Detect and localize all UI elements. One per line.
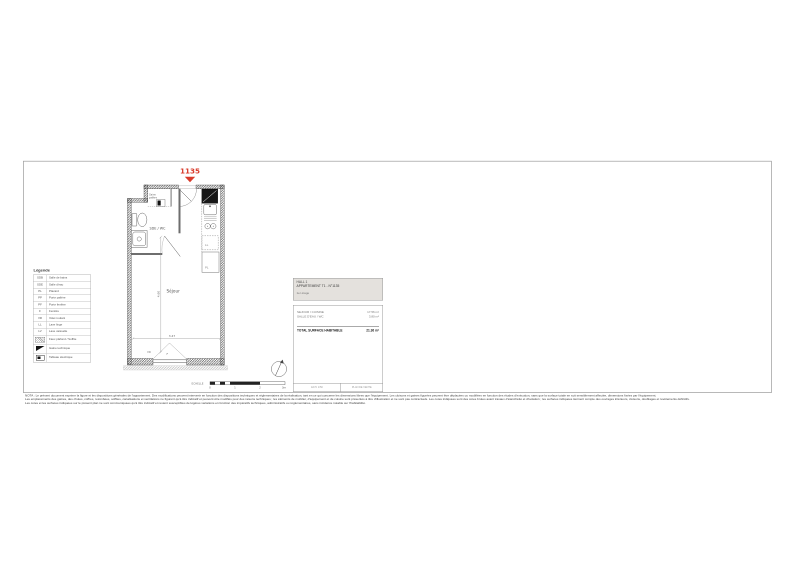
unit-number-label: 1135	[180, 167, 200, 176]
electrical-panel-swatch-icon	[36, 355, 45, 361]
window-label: F	[167, 352, 169, 356]
scale-tick-3: 3m	[282, 385, 287, 389]
dimension-width-label: 3.47	[169, 334, 176, 338]
legend-row: Tableau électrique	[34, 353, 91, 362]
legend-row: LVLave vaisselle	[34, 329, 91, 336]
living-room-label: Séjour	[167, 289, 181, 294]
entry-door	[179, 186, 197, 207]
wc-tank	[132, 214, 137, 227]
closet-label: PL	[205, 266, 209, 270]
scale-tick-0: 0	[209, 385, 211, 389]
scale-tick-2: 2	[259, 385, 261, 389]
scale-bar: ECHELLE 0 1 2 3m	[192, 381, 287, 389]
apartment-info-panel: HALL 1 APPARTEMENT T1 - N°1135 1er étage…	[293, 278, 473, 506]
info-panel-body: SEJOUR / CUISINE 17.56 m² SALLE D'EAU / …	[293, 305, 383, 392]
scale-bar-label: ECHELLE	[192, 381, 204, 385]
bathroom-fixtures	[131, 213, 147, 247]
legend-row: PLPlacard	[34, 288, 91, 295]
surface-area: 3.80 m²	[369, 315, 379, 320]
bathroom-label: SDE / WC	[150, 227, 167, 231]
scale-tick-1: 1	[234, 385, 236, 389]
title-block-scale: ECH. 1/50	[294, 384, 342, 392]
entry-door-leaf	[179, 189, 191, 201]
shower-drain	[137, 237, 141, 241]
bathroom-door-arc	[162, 236, 165, 254]
bathroom-door-leaf	[165, 236, 181, 257]
surface-row: SALLE D'EAU / WC 3.80 m²	[297, 315, 379, 320]
faucet	[209, 205, 211, 207]
cooktop	[205, 224, 216, 229]
legend-row: Faux plafond / Soffite	[34, 335, 91, 344]
legend: Légende SDBSalle de bains SDESalle d'eau…	[33, 268, 149, 457]
technical-duct-swatch-icon	[36, 346, 45, 351]
unit-marker-triangle-icon	[185, 177, 195, 182]
nota-disclaimer: NOTA : Le présent document exprime la fi…	[25, 394, 799, 416]
info-panel-header: HALL 1 APPARTEMENT T1 - N°1135 1er étage	[293, 278, 383, 301]
north-compass-icon	[271, 360, 286, 377]
legend-row: PFPorte fenêtre	[34, 302, 91, 309]
legend-row: Gaine technique	[34, 344, 91, 353]
dimension-depth-label: 4.60	[157, 291, 161, 298]
entry-duct-area: Gaine palière	[148, 189, 172, 207]
legend-title: Légende	[34, 268, 92, 273]
window-bay	[153, 343, 187, 362]
legend-row: SDESalle d'eau	[34, 282, 91, 289]
surface-name: SALLE D'EAU / WC	[297, 315, 324, 320]
washing-machine-label: LL	[205, 243, 209, 247]
soffit-swatch-icon	[35, 337, 45, 343]
wc-toilet	[138, 213, 147, 227]
total-area: 21.36 m²	[366, 329, 379, 333]
legend-row: LLLave linge	[34, 322, 91, 329]
apartment-name: APPARTEMENT T1 - N°1135	[297, 285, 380, 289]
title-block-strip: ECH. 1/50 PLAN DE VENTE	[294, 383, 383, 392]
legend-row: VRVolet roulant	[34, 315, 91, 322]
title-block-doc: PLAN DE VENTE	[341, 384, 383, 392]
nota-line: Les cotes et les surfaces indiquées sur …	[25, 401, 772, 405]
kitchen-strip: LL PL	[202, 189, 219, 272]
legend-row: FFenêtre	[34, 308, 91, 315]
building-name: HALL 1	[297, 281, 380, 285]
legend-table: SDBSalle de bains SDESalle d'eau PLPlaca…	[33, 275, 91, 363]
legend-row: SDBSalle de bains	[34, 275, 91, 282]
total-row: TOTAL SURFACE HABITABLE 21.36 m²	[297, 329, 379, 333]
legend-row: PPPorte palière	[34, 295, 91, 302]
total-divider	[297, 326, 379, 327]
plan-sheet: 1135 VR F	[0, 0, 799, 565]
entry-duct-label-2: palière	[149, 197, 157, 200]
total-label: TOTAL SURFACE HABITABLE	[297, 329, 343, 333]
floor-level: 1er étage	[297, 292, 380, 295]
